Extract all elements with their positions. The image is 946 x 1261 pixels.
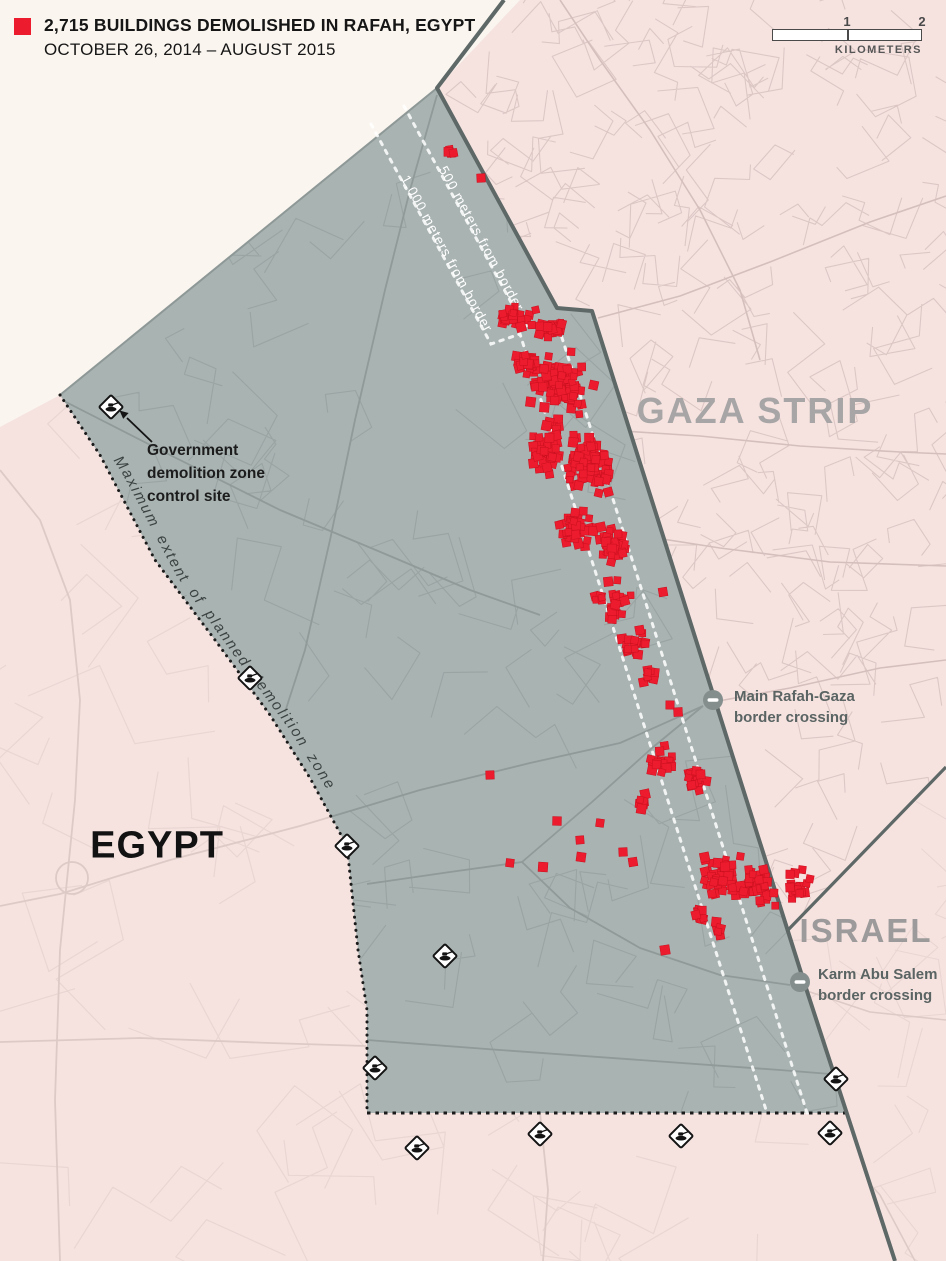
title-block: 2,715 BUILDINGS DEMOLISHED IN RAFAH, EGY… xyxy=(14,15,475,60)
main-rafah-gaza-crossing-label: Main Rafah-Gaza border crossing xyxy=(734,686,855,728)
map-subtitle: OCTOBER 26, 2014 – AUGUST 2015 xyxy=(44,40,475,60)
scale-unit-label: KILOMETERS xyxy=(772,44,922,56)
demolished-building-legend-swatch xyxy=(14,18,31,35)
scale-tick-1: 1 xyxy=(843,14,850,29)
control-site-label: Government demolition zone control site xyxy=(147,439,265,508)
map-title: 2,715 BUILDINGS DEMOLISHED IN RAFAH, EGY… xyxy=(44,15,475,36)
egypt-label: EGYPT xyxy=(90,825,224,868)
karm-abu-salem-crossing-label: Karm Abu Salem border crossing xyxy=(818,964,937,1006)
israel-label: ISRAEL xyxy=(799,912,932,950)
gaza-strip-label: GAZA STRIP xyxy=(637,390,874,432)
scale-bar-rule xyxy=(772,29,922,41)
map-canvas: 500 meters from border1,000 meters from … xyxy=(0,0,946,1261)
scale-bar: 1 2 KILOMETERS xyxy=(772,14,922,56)
map-svg: 500 meters from border1,000 meters from … xyxy=(0,0,946,1261)
scale-tick-2: 2 xyxy=(918,14,925,29)
border-crossing-icon xyxy=(703,690,723,710)
border-crossing-icon xyxy=(790,972,810,992)
